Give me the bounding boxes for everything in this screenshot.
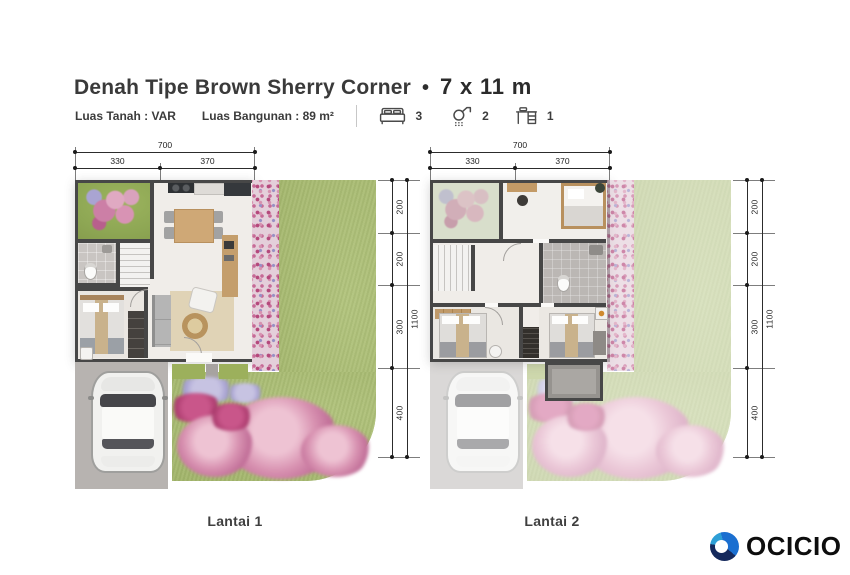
dim-label-width-right: 370 xyxy=(160,156,255,166)
bathroom-count: 2 xyxy=(482,109,489,123)
nightstand xyxy=(489,345,502,358)
stove xyxy=(168,183,194,193)
building-outline xyxy=(430,180,610,362)
sink xyxy=(589,245,603,255)
plant xyxy=(595,183,605,193)
land-area-label: Luas Tanah : VAR xyxy=(75,109,176,123)
divider xyxy=(356,105,358,127)
sink xyxy=(102,245,112,253)
door-opening xyxy=(541,303,554,307)
lamp-table xyxy=(595,307,608,320)
wardrobe xyxy=(128,311,144,358)
sink xyxy=(224,241,234,249)
dim-label-width-left: 330 xyxy=(75,156,160,166)
floorplan-sheet: Denah Tipe Brown Sherry Corner • 7 x 11 … xyxy=(0,0,850,575)
dim-line xyxy=(75,152,255,153)
bedroom-count: 3 xyxy=(415,109,422,123)
stairs xyxy=(433,245,471,291)
dim-line xyxy=(75,168,255,169)
dining-table xyxy=(174,209,214,243)
desk xyxy=(507,183,537,192)
car xyxy=(91,371,165,473)
dim-label-h1: 200 xyxy=(393,180,407,233)
wall xyxy=(78,287,148,291)
workspace-count: 1 xyxy=(547,109,554,123)
dim-label-h2: 200 xyxy=(393,233,407,285)
flower-bush xyxy=(209,403,253,431)
fridge xyxy=(224,183,251,196)
planter xyxy=(219,364,248,379)
brand-logo: OCICIO xyxy=(710,531,841,562)
shelf xyxy=(523,327,539,358)
door-swing xyxy=(503,243,521,261)
building-outline xyxy=(75,180,255,362)
bed xyxy=(549,313,595,358)
kitchen-counter xyxy=(194,183,226,195)
flower-bush xyxy=(564,403,608,431)
flowering-tree xyxy=(433,181,493,233)
door-opening xyxy=(485,303,498,307)
dim-label-h3: 300 xyxy=(393,285,407,368)
plan-label-lantai-1: Lantai 1 xyxy=(160,513,310,529)
sink xyxy=(224,255,234,261)
brand-logo-text: OCICIO xyxy=(746,531,841,562)
building-area-label: Luas Bangunan : 89 m² xyxy=(202,109,334,123)
spec-bar: Luas Tanah : VAR Luas Bangunan : 89 m² 3… xyxy=(75,103,554,129)
flower-strip xyxy=(607,180,634,371)
car xyxy=(446,371,520,473)
toilet xyxy=(557,275,570,292)
wall xyxy=(150,243,154,279)
flower-bush xyxy=(656,425,726,477)
wall xyxy=(499,183,503,243)
wall xyxy=(539,241,543,303)
brand-logo-icon xyxy=(710,532,739,561)
bed-icon xyxy=(379,106,406,127)
flower-strip xyxy=(252,180,279,371)
floorplan-lantai-2: 700 330 370 200 200 300 400 1100 xyxy=(430,143,780,495)
dim-label-width-total: 700 xyxy=(75,140,255,150)
balcony xyxy=(545,362,603,401)
nightstand xyxy=(80,347,93,360)
door-opening xyxy=(186,353,212,362)
wall xyxy=(433,239,503,243)
planter xyxy=(172,364,205,379)
sofa xyxy=(152,295,171,347)
title-bullet: • xyxy=(422,77,429,100)
coffee-table xyxy=(182,313,208,339)
extension-line xyxy=(378,457,420,458)
desk-icon xyxy=(515,106,538,126)
flowering-tree xyxy=(80,181,144,235)
desk-chair xyxy=(517,195,528,206)
plan-label-lantai-2: Lantai 2 xyxy=(477,513,627,529)
title-text: Denah Tipe Brown Sherry Corner xyxy=(74,76,411,100)
dim-label-height-total: 1100 xyxy=(408,180,422,457)
bed xyxy=(439,313,487,358)
floorplan-lantai-1: 700 330 370 200 200 300 400 1100 xyxy=(75,143,425,495)
stairs xyxy=(120,243,150,287)
bed xyxy=(80,295,124,354)
shower-icon xyxy=(450,105,473,128)
wardrobe xyxy=(593,331,606,355)
title-dimensions: 7 x 11 m xyxy=(440,74,532,100)
wall xyxy=(471,245,475,291)
dim-label-h4: 400 xyxy=(393,368,407,457)
toilet xyxy=(84,263,97,280)
page-title: Denah Tipe Brown Sherry Corner • 7 x 11 … xyxy=(74,74,532,100)
wall xyxy=(116,243,120,287)
flower-bush xyxy=(301,425,371,477)
wall xyxy=(150,183,154,243)
door-opening xyxy=(533,239,549,243)
